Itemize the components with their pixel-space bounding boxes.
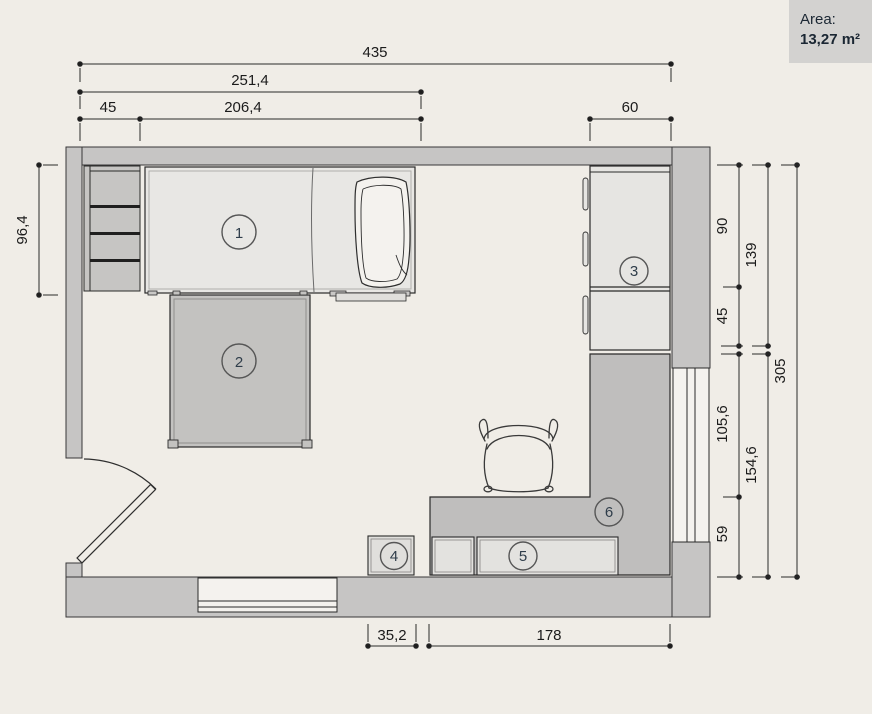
dim-top-wardrobe: 60	[588, 99, 674, 141]
dim-right-col3: 305	[772, 163, 799, 580]
bed-rail	[336, 293, 406, 301]
dim-label-35-2: 35,2	[377, 627, 406, 644]
badge-number-5: 5	[519, 548, 527, 565]
wardrobe-handle	[583, 178, 588, 210]
door-leaf	[77, 485, 155, 563]
dim-label-251-4: 251,4	[231, 72, 269, 89]
dim-label-154-6: 154,6	[743, 446, 760, 484]
dim-label-206-4: 206,4	[224, 99, 262, 116]
dim-label-59: 59	[714, 526, 731, 543]
dim-label-96-4: 96,4	[14, 215, 31, 244]
badge-number-1: 1	[235, 225, 243, 242]
wall-left-upper	[66, 147, 82, 458]
radiator	[198, 578, 337, 612]
dim-right-col2: 139 154,6	[743, 163, 770, 580]
badge-number-3: 3	[630, 263, 638, 280]
furniture-shelf-unit[interactable]	[84, 166, 140, 291]
bed-foot	[148, 291, 157, 295]
dim-top-bed: 206,4	[140, 99, 423, 141]
dim-label-45-top: 45	[100, 99, 117, 116]
dim-top-total: 435	[78, 44, 674, 82]
dim-bottom-box: 35,2	[366, 624, 419, 648]
badge-number-6: 6	[605, 504, 613, 521]
dim-label-139: 139	[743, 242, 760, 267]
dim-label-178: 178	[536, 627, 561, 644]
dim-label-45-right: 45	[714, 308, 731, 325]
floorplan-svg: 1 2 3 4 5 6	[0, 0, 872, 714]
dim-left-bed-depth: 96,4	[14, 163, 58, 298]
wall-bottom	[66, 577, 710, 617]
wall-right-upper	[672, 147, 710, 368]
dim-right-col1: 90 45 105,6 59	[714, 163, 741, 580]
badge-number-4: 4	[390, 548, 398, 565]
pillow	[355, 177, 410, 287]
door	[65, 459, 156, 563]
furniture-wardrobe[interactable]	[583, 166, 670, 350]
furniture-bed[interactable]	[145, 167, 415, 301]
dim-label-435: 435	[362, 44, 387, 61]
wall-left-stub	[66, 563, 82, 577]
wall-top	[66, 147, 710, 165]
window-right	[673, 368, 709, 542]
wardrobe-handle	[583, 232, 588, 266]
dim-label-60: 60	[622, 99, 639, 116]
chair[interactable]	[479, 419, 557, 491]
dim-bottom-desk: 178	[427, 624, 673, 648]
floorplan-canvas: Area: 13,27 m²	[0, 0, 872, 714]
dim-label-90: 90	[714, 218, 731, 235]
dim-top-shelf: 45	[78, 99, 143, 141]
dim-label-305: 305	[772, 358, 789, 383]
wardrobe-handle	[583, 296, 588, 334]
wall-right-lower	[672, 542, 710, 617]
badge-number-2: 2	[235, 354, 243, 371]
dim-label-105-6: 105,6	[714, 405, 731, 443]
door-swing-arc	[84, 459, 156, 489]
